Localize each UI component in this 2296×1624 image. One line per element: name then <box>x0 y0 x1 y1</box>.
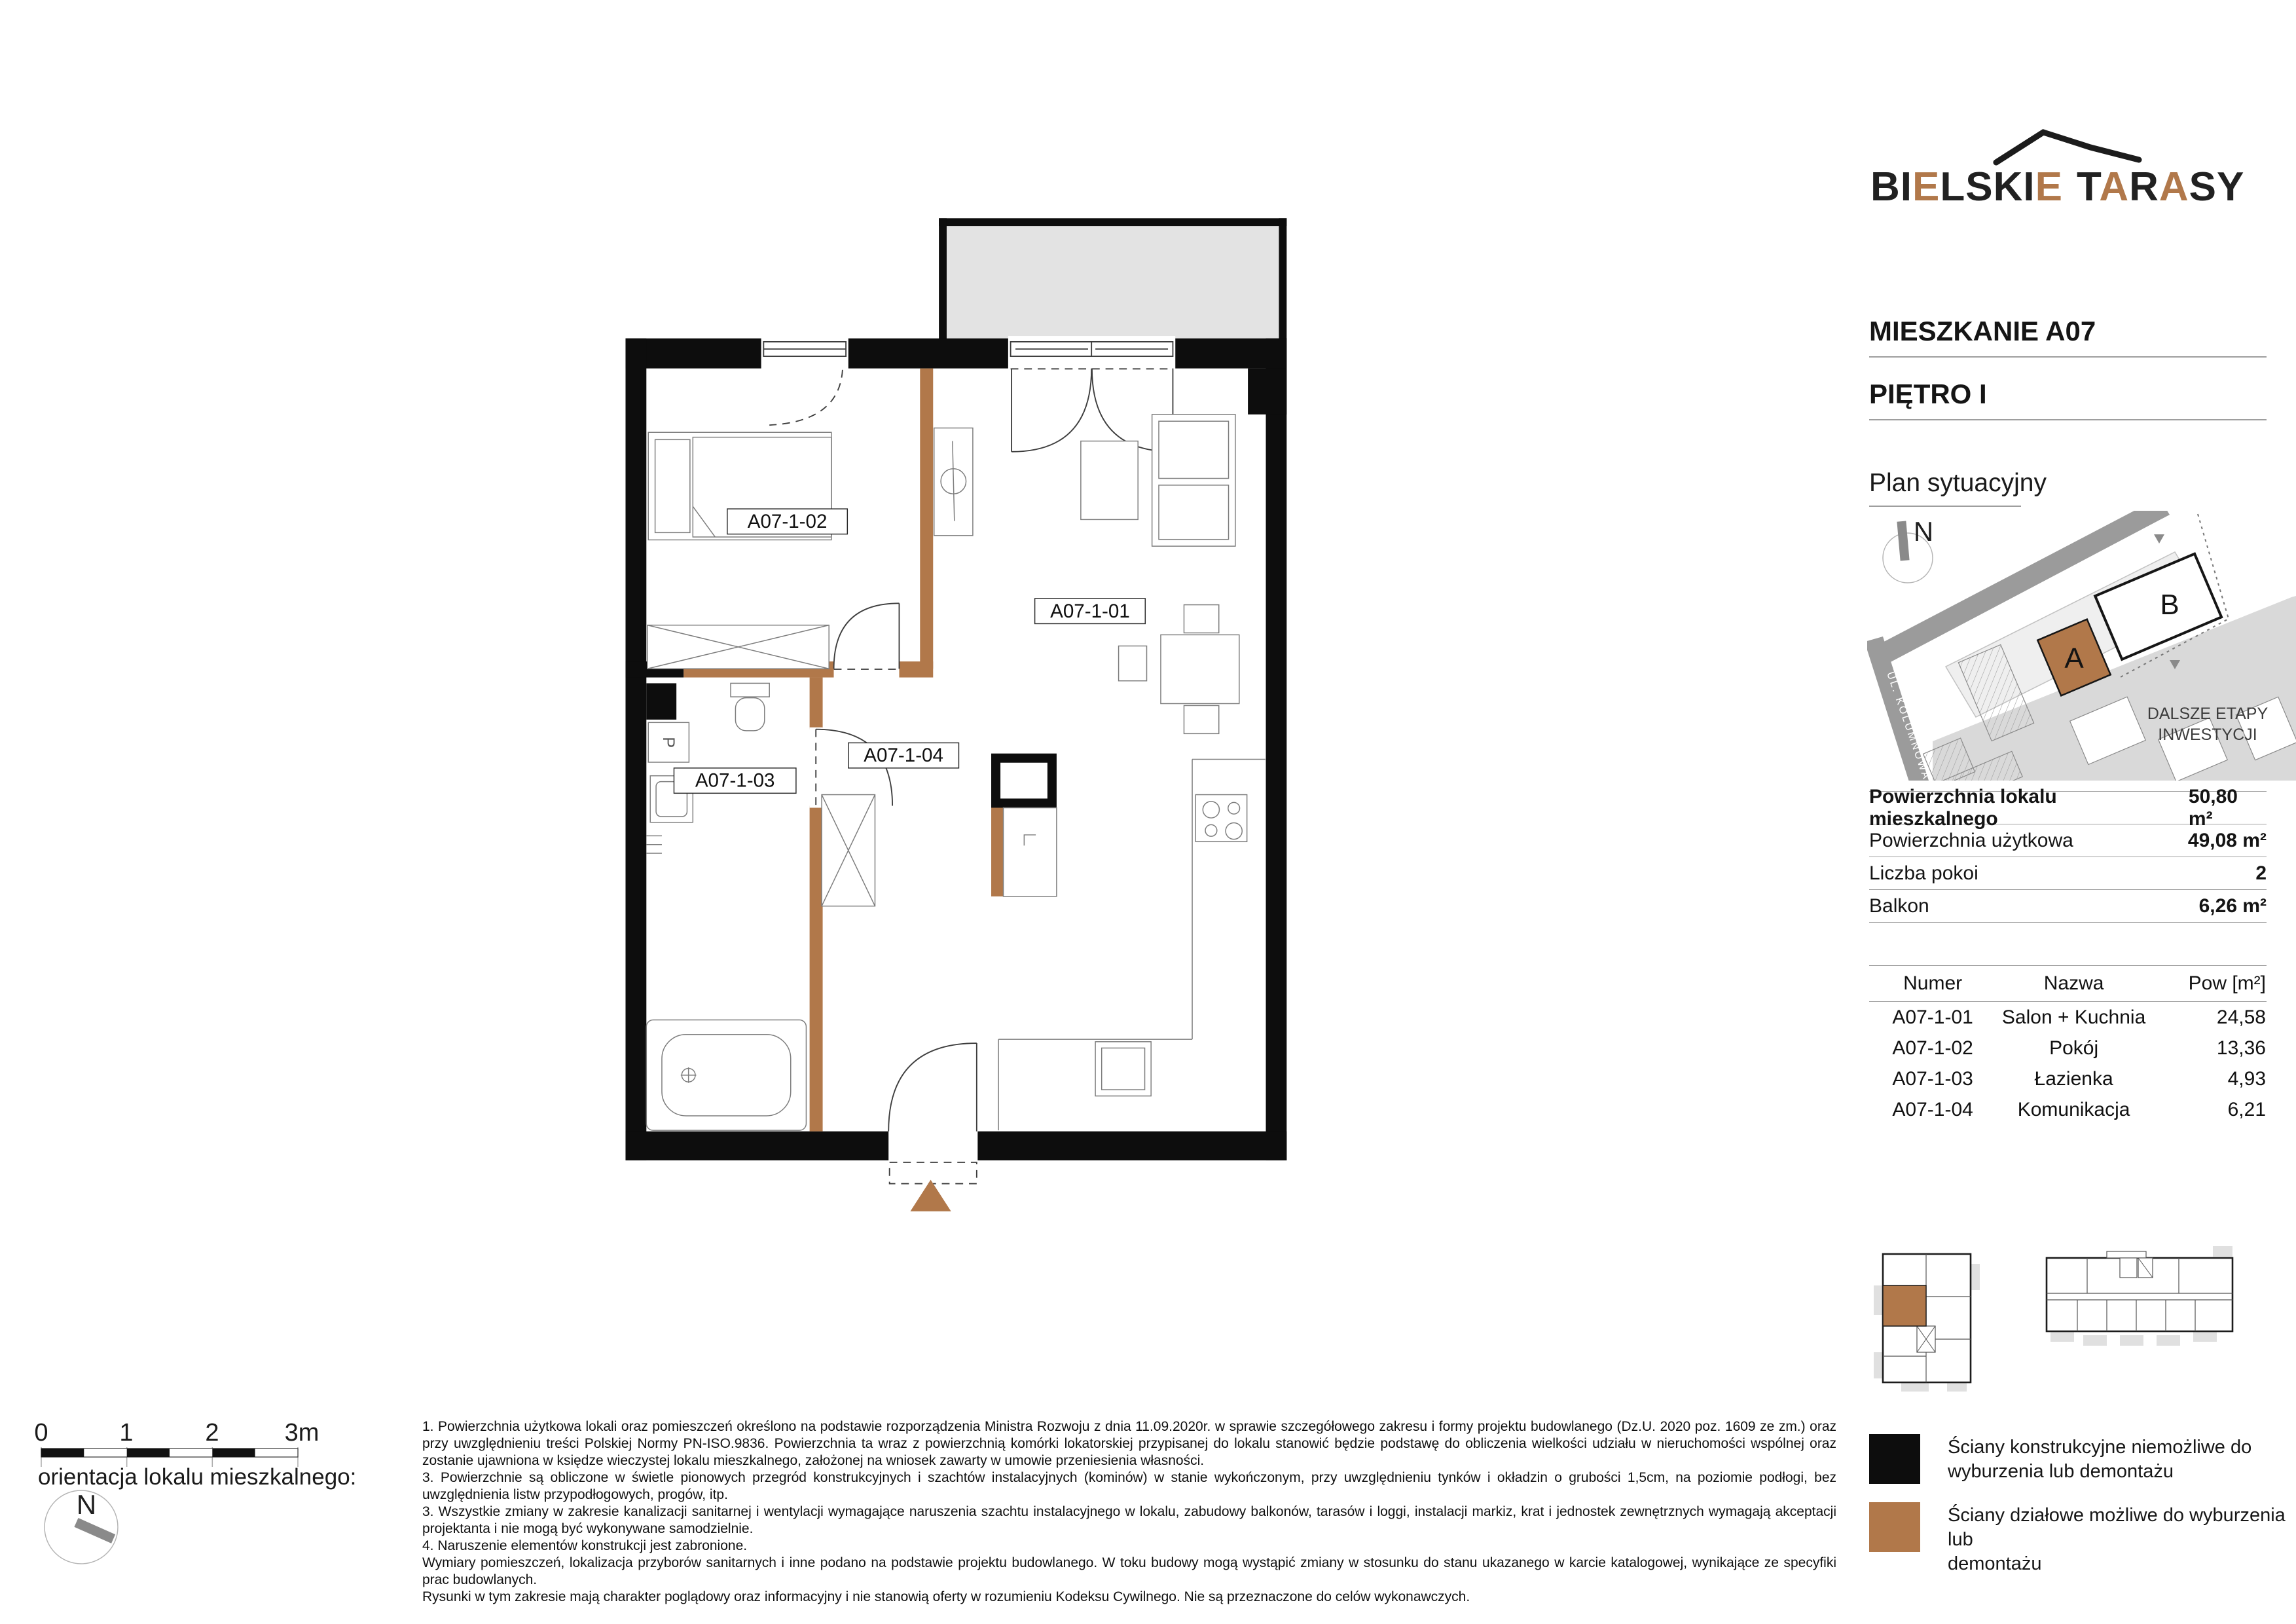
legend-text: Ściany konstrukcyjne niemożliwe do wybur… <box>1948 1434 2251 1484</box>
room-label-pokoj: A07-1-02 <box>727 509 847 534</box>
roof-icon <box>1992 126 2143 166</box>
orientation-compass: N <box>39 1485 128 1574</box>
logo-part: R <box>2129 164 2159 210</box>
scale-label: 2 <box>205 1419 219 1447</box>
partition-wall-swatch <box>1869 1502 1920 1552</box>
logo-text: BIELSKIETARASY <box>1870 164 2244 210</box>
summary-table: Powierzchnia lokalu mieszkalnego 50,80 m… <box>1869 791 2267 923</box>
oven <box>1095 1042 1151 1096</box>
entrance-arrow-icon <box>910 1180 951 1211</box>
room-number: A07-1-01 <box>1869 1002 1996 1033</box>
summary-row: Balkon 6,26 m² <box>1869 890 2267 923</box>
installation-shaft <box>991 754 1057 808</box>
north-label: N <box>77 1489 96 1520</box>
summary-row: Powierzchnia lokalu mieszkalnego 50,80 m… <box>1869 792 2267 824</box>
table-row: A07-1-03 Łazienka 4,93 <box>1869 1063 2267 1094</box>
legend-text: Ściany działowe możliwe do wyburzenia lu… <box>1948 1502 2288 1576</box>
rooms-col-number: Numer <box>1869 966 1996 1002</box>
siteplan-map: DALSZE ETAPY INWESTYCJI UL. FILAROWA UL.… <box>1867 511 2296 781</box>
future-stages-line1: DALSZE ETAPY <box>2147 705 2269 723</box>
summary-label: Liczba pokoi <box>1869 862 1978 885</box>
entrance-door <box>888 1043 977 1184</box>
north-label: N <box>1914 516 1933 547</box>
siteplan-title: Plan sytuacyjny <box>1869 469 2047 498</box>
entry-marker-icon <box>2154 534 2164 544</box>
room-area: 6,21 <box>2151 1094 2267 1125</box>
disclaimer-paragraph: 3. Powierzchnie są obliczone w świetle p… <box>422 1469 1836 1504</box>
room-area: 13,36 <box>2151 1033 2267 1063</box>
scale-label: 3m <box>285 1419 318 1447</box>
summary-label: Balkon <box>1869 895 1929 917</box>
summary-value: 2 <box>2255 862 2267 885</box>
bedroom-door <box>834 603 900 680</box>
summary-value: 49,08 m² <box>2188 830 2267 852</box>
structural-wall-swatch <box>1869 1434 1920 1484</box>
future-stages-line2: INWESTYCJI <box>2158 726 2257 744</box>
svg-text:A07-1-01: A07-1-01 <box>1050 600 1130 622</box>
room-number: A07-1-02 <box>1869 1033 1996 1063</box>
logo-part: LSKI <box>1940 164 2035 210</box>
disclaimer-paragraph: 1. Powierzchnia użytkowa lokali oraz pom… <box>422 1418 1836 1469</box>
logo-part: SY <box>2189 164 2245 210</box>
bathtub <box>646 1020 806 1131</box>
coffee-table <box>1081 441 1138 520</box>
washing-machine: P <box>648 722 689 762</box>
room-name: Pokój <box>1996 1033 2151 1063</box>
legend-line: Ściany konstrukcyjne niemożliwe do <box>1948 1435 2251 1460</box>
room-area: 4,93 <box>2151 1063 2267 1094</box>
logo: BIELSKIETARASY <box>1870 126 2263 237</box>
summary-label: Powierzchnia użytkowa <box>1869 830 2073 852</box>
floorplan: P A07-1-02 A07-1-01 A07-1 <box>589 196 1349 1244</box>
room-label-salon: A07-1-01 <box>1035 599 1146 623</box>
summary-row: Powierzchnia użytkowa 49,08 m² <box>1869 824 2267 857</box>
legend-item-partition: Ściany działowe możliwe do wyburzenia lu… <box>1869 1502 2288 1576</box>
sofa <box>1152 415 1235 546</box>
logo-part: E <box>1912 164 1940 210</box>
balcony <box>939 218 1286 339</box>
washer-label: P <box>659 737 678 748</box>
room-label-lazienka: A07-1-03 <box>674 768 795 793</box>
hall-wardrobe <box>822 795 875 906</box>
room-area: 24,58 <box>2151 1002 2267 1033</box>
room-name: Salon + Kuchnia <box>1996 1002 2151 1033</box>
summary-value: 6,26 m² <box>2199 895 2267 917</box>
north-needle-icon <box>74 1518 115 1543</box>
keyplan-building-b <box>2041 1246 2238 1361</box>
building-b-label: B <box>2160 589 2179 621</box>
balcony-door <box>1008 336 1175 452</box>
apartment-title: MIESZKANIE A07 <box>1869 316 2267 358</box>
building-a-label: A <box>2064 642 2084 674</box>
scale-label: 1 <box>119 1419 133 1447</box>
wardrobe <box>647 625 829 669</box>
room-name: Łazienka <box>1996 1063 2151 1094</box>
fridge <box>1004 808 1057 896</box>
rooms-col-area: Pow [m²] <box>2151 966 2267 1002</box>
disclaimer-paragraph: 4. Naruszenie elementów konstrukcji jest… <box>422 1538 1836 1555</box>
disclaimer-text: 1. Powierzchnia użytkowa lokali oraz pom… <box>422 1418 1836 1606</box>
keyplan-building-a <box>1874 1247 1982 1393</box>
svg-text:A07-1-04: A07-1-04 <box>864 745 943 766</box>
room-label-komunikacja: A07-1-04 <box>848 743 959 767</box>
svg-text:A07-1-02: A07-1-02 <box>748 511 828 532</box>
summary-label: Powierzchnia lokalu mieszkalnego <box>1869 786 2189 830</box>
legend-line: demontażu <box>1948 1552 2288 1576</box>
table-row: A07-1-02 Pokój 13,36 <box>1869 1033 2267 1063</box>
logo-part: A <box>2099 164 2129 210</box>
tv-cabinet <box>934 428 973 536</box>
highlighted-unit <box>1883 1285 1926 1326</box>
legend-item-structural: Ściany konstrukcyjne niemożliwe do wybur… <box>1869 1434 2288 1484</box>
disclaimer-paragraph: Wymiary pomieszczeń, lokalizacja przybor… <box>422 1555 1836 1589</box>
scale-label: 0 <box>34 1419 48 1447</box>
disclaimer-paragraph: 3. Wszystkie zmiany w zakresie kanalizac… <box>422 1504 1836 1538</box>
rooms-table: Numer Nazwa Pow [m²] A07-1-01 Salon + Ku… <box>1869 965 2267 1125</box>
table-row: A07-1-04 Komunikacja 6,21 <box>1869 1094 2267 1125</box>
room-name: Komunikacja <box>1996 1094 2151 1125</box>
summary-row: Liczba pokoi 2 <box>1869 857 2267 890</box>
bedroom-window <box>761 336 848 425</box>
room-number: A07-1-04 <box>1869 1094 1996 1125</box>
stove <box>1195 795 1247 842</box>
toilet <box>731 683 769 730</box>
radiator <box>646 836 662 853</box>
window-swing-arc <box>769 370 843 425</box>
floor-title: PIĘTRO I <box>1869 378 2267 420</box>
disclaimer-paragraph: Rysunki w tym zakresie mają charakter po… <box>422 1589 1836 1606</box>
logo-part: T <box>2077 164 2099 210</box>
summary-value: 50,80 m² <box>2189 786 2267 830</box>
table-row: A07-1-01 Salon + Kuchnia 24,58 <box>1869 1002 2267 1033</box>
north-needle-icon <box>1897 521 1909 561</box>
catalog-sheet: BIELSKIETARASY MIESZKANIE A07 PIĘTRO I P… <box>0 0 2296 1624</box>
street-kolumnowa: UL. KOLUMNOWA <box>1867 637 1932 781</box>
rooms-col-name: Nazwa <box>1996 966 2151 1002</box>
siteplan-compass: N <box>1883 516 1933 583</box>
svg-text:A07-1-03: A07-1-03 <box>695 770 775 792</box>
logo-part: A <box>2159 164 2189 210</box>
logo-part: E <box>2035 164 2063 210</box>
siteplan-rule <box>1869 506 2021 507</box>
rooms-header-row: Numer Nazwa Pow [m²] <box>1869 966 2267 1002</box>
legend-line: wyburzenia lub demontażu <box>1948 1460 2251 1484</box>
legend-line: Ściany działowe możliwe do wyburzenia lu… <box>1948 1504 2288 1552</box>
room-number: A07-1-03 <box>1869 1063 1996 1094</box>
logo-part: BI <box>1870 164 1912 210</box>
legend: Ściany konstrukcyjne niemożliwe do wybur… <box>1869 1434 2288 1595</box>
